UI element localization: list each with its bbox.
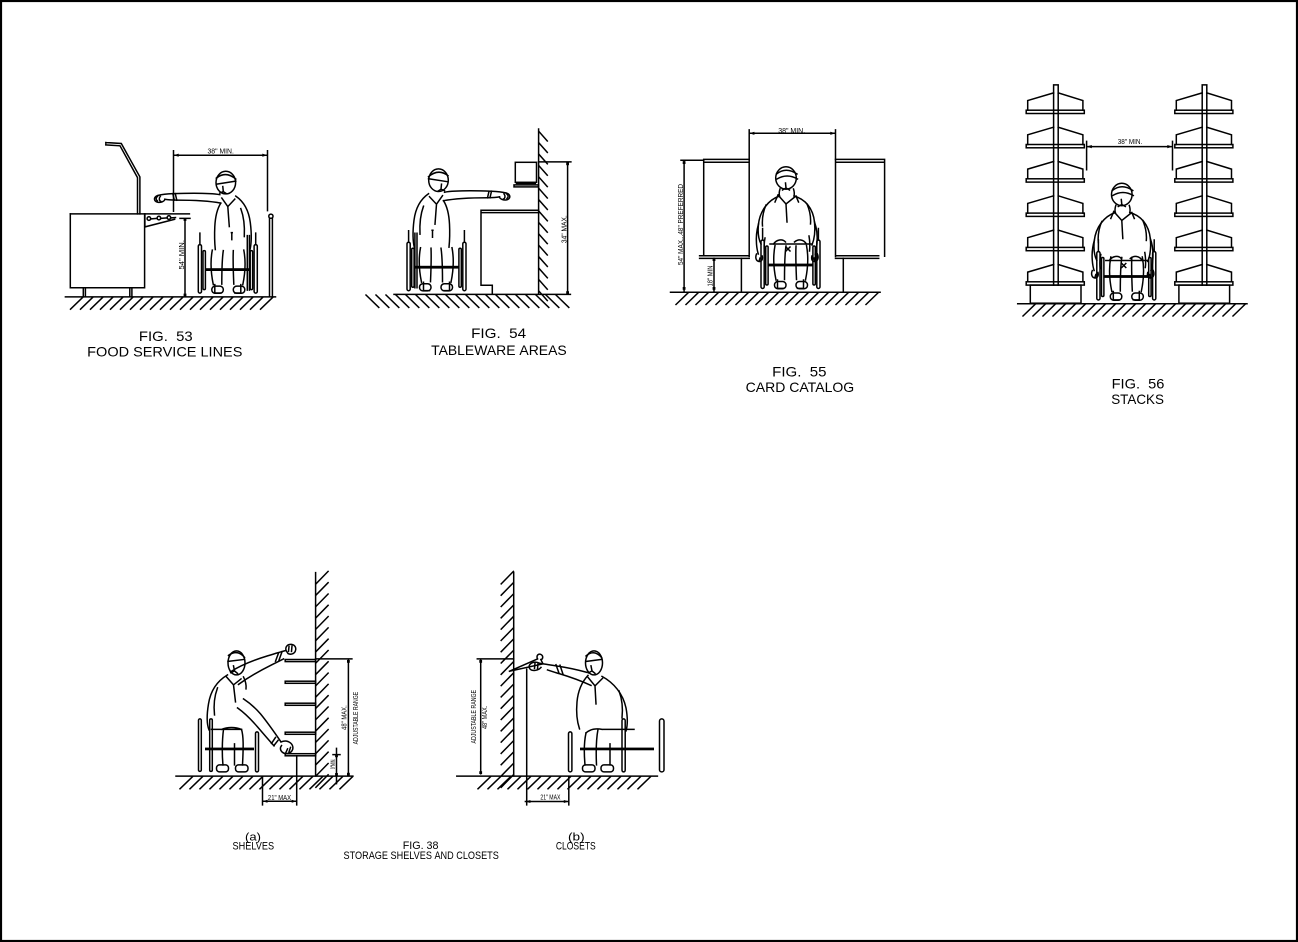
svg-text:CLOSETS: CLOSETS [556, 841, 596, 853]
svg-text:21" MAX: 21" MAX [540, 794, 560, 801]
svg-text:21" MAX: 21" MAX [268, 795, 291, 802]
svg-text:54" MIN.: 54" MIN. [179, 240, 186, 270]
svg-text:9"MIN.: 9"MIN. [331, 759, 337, 770]
svg-text:34" MAX.: 34" MAX. [562, 215, 569, 243]
svg-text:CARD CATALOG: CARD CATALOG [746, 379, 855, 395]
svg-text:FIG. 56: FIG. 56 [1112, 375, 1165, 391]
svg-text:FOOD SERVICE LINES: FOOD SERVICE LINES [87, 344, 242, 360]
svg-text:FIG. 54: FIG. 54 [471, 325, 526, 341]
svg-text:FIG. 55: FIG. 55 [772, 363, 827, 379]
svg-text:STACKS: STACKS [1111, 391, 1164, 407]
svg-text:38" MIN.: 38" MIN. [1118, 139, 1143, 146]
svg-text:ADJUSTABLE RANGE: ADJUSTABLE RANGE [471, 690, 478, 744]
svg-text:48" MAX.: 48" MAX. [482, 706, 489, 729]
svg-text:ADJUSTABLE RANGE: ADJUSTABLE RANGE [353, 692, 360, 745]
svg-text:54" MAX...48" PREFERRED: 54" MAX...48" PREFERRED [678, 184, 685, 265]
svg-text:48" MAX.: 48" MAX. [342, 705, 349, 730]
svg-text:SHELVES: SHELVES [233, 841, 275, 853]
svg-text:FIG. 53: FIG. 53 [139, 328, 193, 344]
svg-text:38" MIN.: 38" MIN. [208, 148, 234, 155]
svg-text:TABLEWARE AREAS: TABLEWARE AREAS [431, 342, 567, 358]
svg-text:18" MIN: 18" MIN [707, 266, 714, 287]
svg-text:38" MIN.: 38" MIN. [778, 128, 805, 135]
svg-text:STORAGE SHELVES AND CLOSETS: STORAGE SHELVES AND CLOSETS [344, 850, 499, 862]
